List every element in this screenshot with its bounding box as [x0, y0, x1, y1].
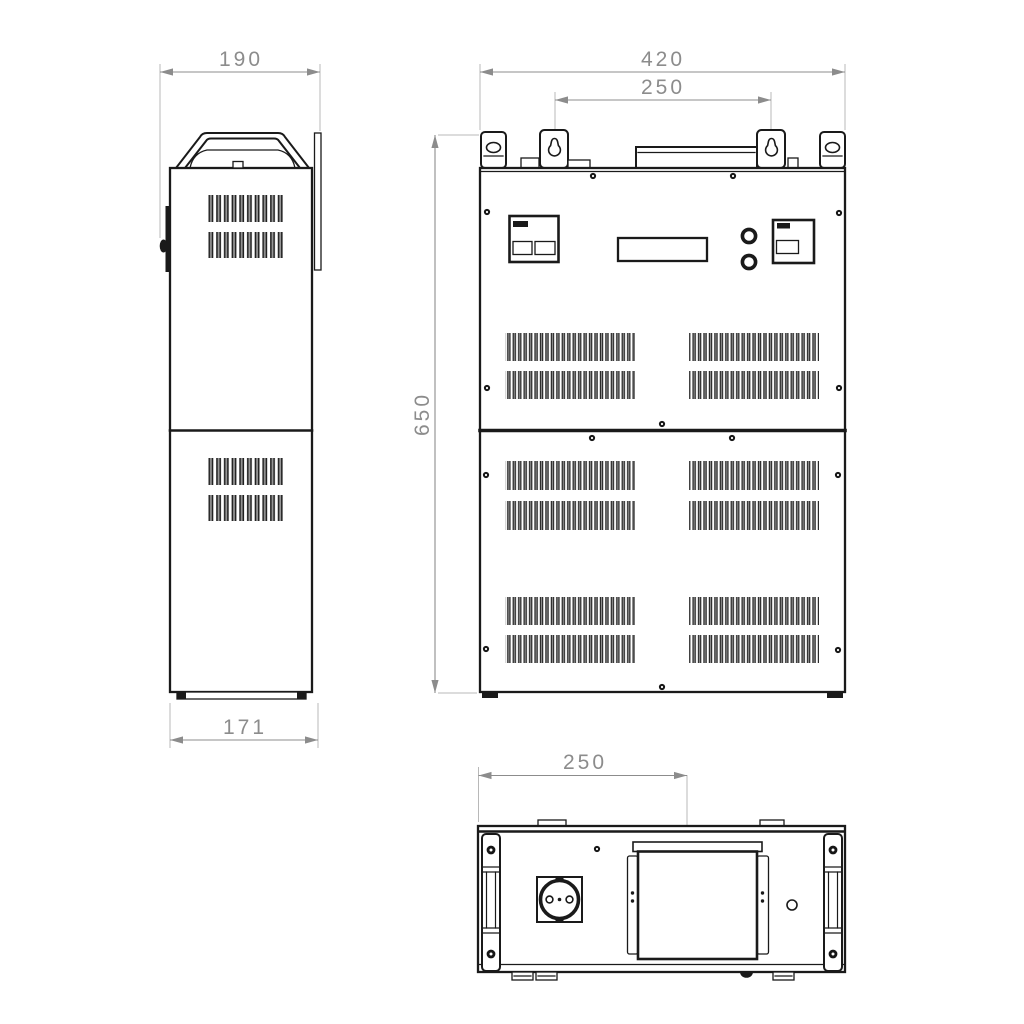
terminal-cover [628, 842, 769, 959]
side-knob [160, 240, 168, 253]
drawing-canvas: 190 171 420 [0, 0, 1024, 1024]
vent-grille [689, 635, 819, 663]
top-tab [233, 162, 243, 169]
socket-notch [556, 878, 564, 882]
screw-hole [589, 435, 595, 441]
top-handle-strip [636, 147, 757, 168]
mounting-bracket-oval [820, 132, 845, 168]
screw-hole [730, 173, 736, 179]
screw-hole [729, 435, 735, 441]
wall-bracket-rail [482, 834, 500, 971]
screw-hole [659, 684, 665, 690]
vent-grille [689, 371, 819, 399]
screw-hole [483, 472, 489, 478]
vent-grille [207, 495, 284, 521]
vent-grille [689, 461, 819, 490]
vent-grille [505, 635, 635, 663]
screw-hole [835, 647, 841, 653]
breaker-brand-label [513, 221, 528, 227]
control-button [742, 255, 755, 268]
device-foot [482, 692, 498, 698]
vent-grille [505, 333, 635, 361]
flange-screw [761, 899, 764, 902]
side-latch-strip [166, 206, 171, 272]
bracket-base-step [788, 158, 798, 168]
socket-notch [556, 918, 564, 922]
device-foot [536, 972, 557, 980]
vent-grille [505, 461, 635, 490]
device-foot [177, 692, 186, 699]
technical-drawing-page: 190 171 420 [0, 0, 1024, 1024]
mounting-bracket-keyhole [757, 130, 785, 168]
vent-grille [689, 597, 819, 625]
screw-hole [590, 173, 596, 179]
dimension-label-side-depth: 171 [223, 716, 267, 739]
dimension-label-mount-span: 250 [641, 76, 685, 99]
vent-grille [505, 371, 635, 399]
power-socket [537, 877, 582, 922]
terminal-cover-lip [633, 842, 762, 852]
vent-grille [689, 501, 819, 530]
display-window [618, 238, 707, 261]
screw-hole [659, 421, 665, 427]
vent-grille [207, 232, 284, 258]
vent-grille [207, 195, 284, 222]
breaker-brand-label [777, 223, 790, 229]
terminal-cover-flange [628, 856, 639, 954]
bracket-base-step [521, 158, 539, 168]
base-plate [177, 692, 306, 699]
socket-center-dot [558, 898, 562, 902]
mounting-bracket-oval [481, 132, 506, 168]
vent-grille [505, 501, 635, 530]
control-button [742, 229, 755, 242]
screw-hole [484, 385, 490, 391]
wall-bracket-rail [824, 834, 842, 971]
vent-grille [505, 597, 635, 625]
device-foot [512, 972, 533, 980]
breaker-1pole [773, 220, 814, 263]
screw-hole [594, 846, 600, 852]
vent-grille [689, 333, 819, 361]
screw-hole [835, 472, 841, 478]
flange-screw [761, 891, 764, 894]
dimension-label-front-height: 650 [411, 392, 434, 436]
screw-hole [836, 385, 842, 391]
device-foot [773, 972, 794, 980]
screw-hole [484, 209, 490, 215]
flange-screw [631, 899, 634, 902]
vent-grille [207, 458, 284, 485]
dimension-label-front-width: 420 [641, 48, 685, 71]
dimension-label-terminal-offset: 250 [563, 751, 607, 774]
device-foot [827, 692, 843, 698]
mounting-bracket-keyhole [540, 130, 568, 168]
screw-hole [483, 646, 489, 652]
terminal-cover-panel [638, 852, 757, 960]
device-foot [297, 692, 306, 699]
dimension-label-side-width: 190 [219, 48, 263, 71]
screw-hole [836, 210, 842, 216]
flange-screw [631, 891, 634, 894]
wall-bracket-edge [315, 133, 322, 270]
terminal-cover-flange [757, 856, 769, 954]
bracket-base-step [568, 160, 590, 168]
breaker-2pole [510, 216, 559, 262]
